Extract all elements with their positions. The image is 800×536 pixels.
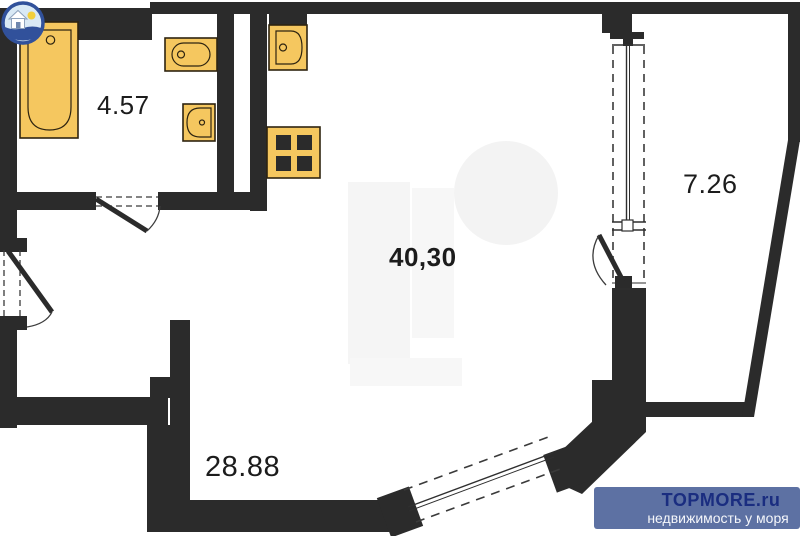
bathroom-door bbox=[96, 197, 160, 231]
top-wall-thin bbox=[150, 2, 800, 14]
entry-door-stub-top bbox=[0, 238, 27, 252]
stove-icon bbox=[267, 127, 320, 178]
bathroom-bottom-wall-left bbox=[0, 192, 96, 210]
kitchen-wall bbox=[250, 13, 267, 211]
balcony-door-leaf bbox=[599, 235, 623, 281]
diagonal-window bbox=[404, 436, 563, 522]
balcony-top-stub bbox=[602, 2, 632, 33]
living-room-area-label: 40,30 bbox=[389, 242, 457, 273]
watermark-banner: TOPMORE.ru недвижимость у моря bbox=[594, 487, 800, 529]
bathroom-door-leaf bbox=[96, 199, 147, 231]
toilet-icon bbox=[183, 104, 215, 141]
watermark-logo-icon bbox=[0, 0, 46, 46]
kitchen-sink-icon bbox=[269, 25, 307, 70]
floor-plan: 4.57 40,30 7.26 28.88 TOPMORE.ru недвижи… bbox=[0, 0, 800, 536]
hall-partition bbox=[170, 320, 190, 425]
bathroom-bottom-wall-right bbox=[158, 192, 267, 210]
watermark-brand: TOPMORE.ru bbox=[646, 490, 796, 511]
entrance-door-arc bbox=[27, 312, 52, 327]
hall-pier bbox=[150, 377, 178, 398]
balcony-glazing bbox=[612, 45, 646, 289]
lower-left-wall bbox=[147, 425, 190, 532]
bathroom-area-label: 4.57 bbox=[97, 90, 150, 121]
balcony-divider-upper bbox=[612, 288, 646, 383]
balcony-window-head bbox=[610, 32, 644, 39]
bathroom-right-wall bbox=[217, 13, 234, 193]
entry-door-stub-bottom bbox=[0, 316, 27, 330]
sink-icon bbox=[165, 38, 217, 71]
bottom-wall bbox=[188, 500, 394, 532]
entrance-door bbox=[4, 250, 52, 327]
hall-area-label: 28.88 bbox=[205, 451, 280, 484]
right-wall bbox=[788, 2, 800, 142]
hall-bottom-wall bbox=[0, 397, 168, 425]
entrance-door-leaf bbox=[8, 251, 52, 312]
balcony-sill-tick bbox=[622, 220, 633, 231]
balcony-bottom-wall bbox=[633, 402, 749, 417]
balcony-area-label: 7.26 bbox=[683, 169, 738, 200]
watermark-tagline: недвижимость у моря bbox=[640, 510, 796, 526]
right-wall-slanted bbox=[742, 140, 800, 417]
fixtures bbox=[20, 22, 320, 178]
